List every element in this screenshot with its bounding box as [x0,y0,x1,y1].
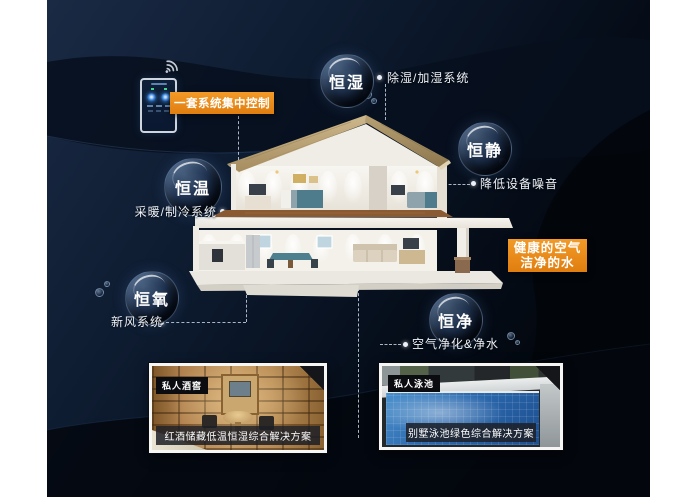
benefit-line-1: 健康的空气 [514,241,582,256]
benefit-line-2: 洁净的水 [520,256,574,271]
label-noise-reduction: 降低设备噪音 [480,177,558,191]
pool-card: 私人泳池 别墅泳池绿色综合解决方案 [379,363,563,450]
corner-ribbon [300,366,324,390]
wine-cellar-caption: 红酒储藏低温恒湿综合解决方案 [156,426,320,445]
corner-ribbon [536,366,560,390]
wine-cellar-photo: 私人酒窖 红酒储藏低温恒湿综合解决方案 [152,366,324,450]
connector-house-to-cards [358,288,359,438]
bubble-quiet: 恒静 [458,122,512,176]
connector-oxygen-horizontal [166,322,246,323]
central-control-text: 一套系统集中控制 [174,95,270,111]
cellar-back-panel [221,374,259,415]
label-air-water-purification: 空气净化&净水 [412,337,499,351]
infographic-frame: 一套系统集中控制 健康的空气 洁净的水 恒湿 恒静 恒温 恒氧 恒净 [0,0,700,497]
infographic-canvas: 一套系统集中控制 健康的空气 洁净的水 恒湿 恒静 恒温 恒氧 恒净 [47,0,650,497]
phone-readout-row [148,110,169,112]
pool-side-deck [540,384,560,447]
decorative-bubble [104,281,110,287]
phone-screen-title-bar [151,83,167,85]
connector-dot [377,75,382,80]
phone-status-leds [151,88,167,90]
label-heating-cooling-system: 采暖/制冷系统 [125,205,217,219]
cellar-artwork [229,381,250,397]
pool-photo: 私人泳池 别墅泳池绿色综合解决方案 [382,366,560,447]
phone-control-knobs [147,93,170,102]
wine-cellar-badge: 私人酒窖 [156,377,208,394]
benefit-banner: 健康的空气 洁净的水 [508,239,587,272]
connector-dot [403,342,408,347]
pool-badge: 私人泳池 [388,375,440,392]
phone-readout-row [147,105,171,107]
decorative-bubble [515,340,520,345]
label-dehumidify-system: 除湿/加湿系统 [387,71,469,85]
wine-cellar-card: 私人酒窖 红酒储藏低温恒湿综合解决方案 [149,363,327,453]
central-control-banner: 一套系统集中控制 [170,92,274,114]
bubble-humidity: 恒湿 [320,54,374,108]
decorative-bubble [371,98,377,104]
decorative-bubble [95,288,104,297]
decorative-bubble [507,332,515,340]
pool-caption: 别墅泳池绿色综合解决方案 [406,423,536,442]
label-fresh-air-system: 新风系统 [111,315,163,329]
connector-purity-horizontal [380,344,401,345]
